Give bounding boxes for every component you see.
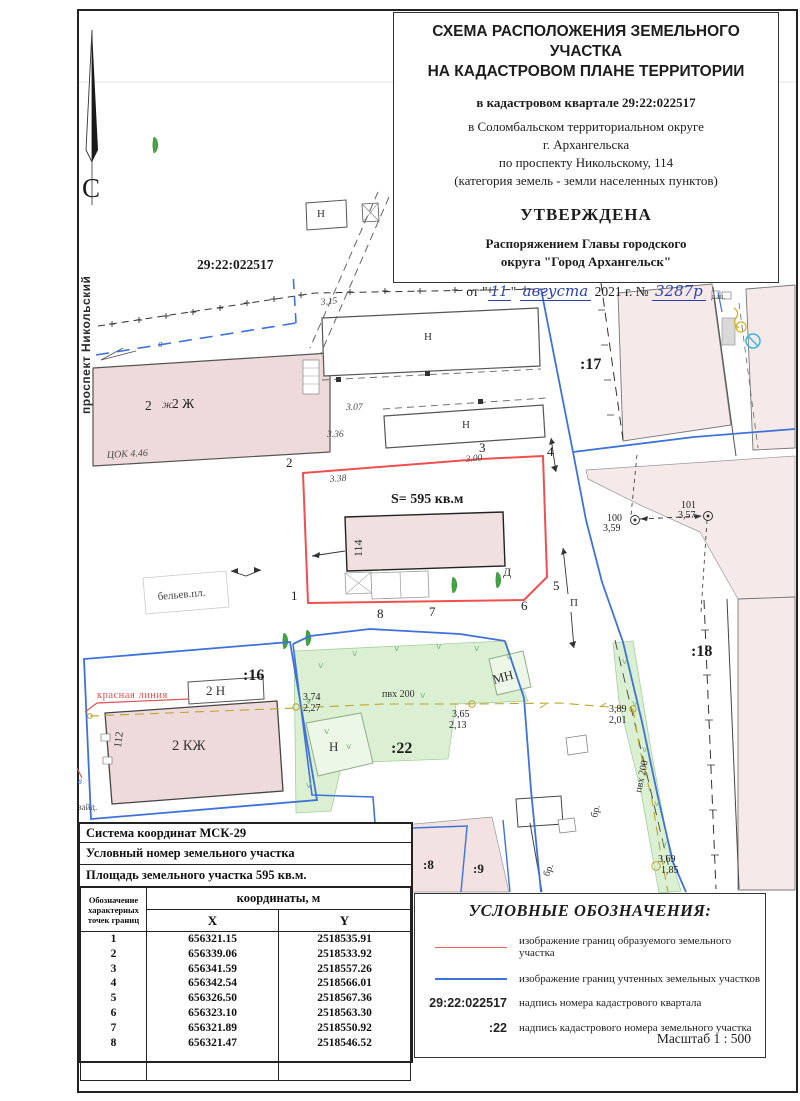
approval-line: округа "Город Архангельск" — [394, 253, 778, 271]
quarter-number-swatch: 29:22:022517 — [415, 996, 507, 1010]
title-block: СХЕМА РАСПОЛОЖЕНИЯ ЗЕМЕЛЬНОГО УЧАСТКА НА… — [393, 12, 779, 283]
point-number: 2 — [81, 947, 147, 962]
table-filler — [81, 1050, 411, 1080]
elevation-value: 3,65 — [452, 709, 470, 720]
points-table: Обозначение характерных точек границ коо… — [80, 887, 411, 1081]
doc-title-line2: НА КАДАСТРОВОМ ПЛАНЕ ТЕРРИТОРИИ — [394, 62, 778, 82]
x-value: 656321.89 — [147, 1021, 279, 1036]
date-prefix: от " — [466, 284, 487, 299]
handwritten-number: 3287р — [652, 282, 706, 301]
legend-item-label: надпись номера кадастрового квартала — [519, 997, 701, 1009]
x-value: 656342.54 — [147, 976, 279, 991]
x-value: 656341.59 — [147, 962, 279, 977]
hand-mark-cok: ЦОК 4.46 — [106, 448, 149, 461]
parcel-18-label: :18 — [691, 643, 712, 660]
x-value: 656321.15 — [147, 932, 279, 947]
building-2kzh-label: 2 КЖ — [172, 738, 206, 754]
grass-mark: v — [632, 699, 638, 709]
vertex-7: 7 — [429, 604, 436, 619]
point-number: 8 — [81, 1036, 147, 1051]
building-n-label: Н — [317, 208, 325, 220]
x-value: 656326.50 — [147, 991, 279, 1006]
parcel-8-label: :8 — [423, 857, 434, 872]
cadastral-quarter-number: 29:22:022517 — [197, 257, 274, 272]
grass-mark: v — [394, 644, 400, 654]
vertex-8: 8 — [377, 606, 384, 621]
y-value: 2518563.30 — [279, 1006, 411, 1021]
legend-item: изображение границ образуемого земельног… — [415, 935, 765, 959]
building-114-label: 114 — [351, 539, 365, 557]
coord-row: 8656321.472518546.52 — [81, 1036, 411, 1051]
x-value: 656339.06 — [147, 947, 279, 962]
coord-row: 5656326.502518567.36 — [81, 991, 411, 1006]
vertex-2: 2 — [286, 455, 293, 470]
legend-item-label: изображение границ образуемого земельног… — [519, 935, 765, 959]
cadastral-quarter-line: в кадастровом квартале 29:22:022517 — [394, 95, 778, 111]
building-n-label: Н — [424, 331, 432, 343]
hand-mark-elev: 3.38 — [328, 474, 347, 486]
point-d-label: Д — [503, 565, 511, 579]
legend-title: УСЛОВНЫЕ ОБОЗНАЧЕНИЯ: — [415, 901, 765, 921]
coord-row: 1656321.152518535.91 — [81, 932, 411, 947]
grass-mark: v — [346, 742, 352, 752]
coord-row: 7656321.892518550.92 — [81, 1021, 411, 1036]
grass-mark: v — [654, 799, 660, 809]
vertex-5: 5 — [553, 578, 560, 593]
coords-column-header: координаты, м — [147, 888, 411, 910]
elevation-value: 3,69 — [658, 854, 676, 865]
grass-mark: v — [352, 649, 358, 659]
y-value: 2518546.52 — [279, 1036, 411, 1051]
building-112-label: 112 — [112, 731, 126, 748]
parcel-16-label: :16 — [243, 667, 264, 684]
y-value: 2518535.91 — [279, 932, 411, 947]
coord-row: 3656341.592518557.26 — [81, 962, 411, 977]
parcel-9-label: :9 — [473, 861, 484, 876]
street-name: проспект Никольский — [79, 276, 93, 414]
vertex-1: 1 — [291, 588, 298, 603]
grass-mark: v — [474, 644, 480, 654]
legend-item-label: изображение границ учтенных земельных уч… — [519, 973, 760, 985]
date-mid: " — [511, 284, 517, 299]
area-row: Площадь земельного участка 595 кв.м. — [80, 865, 411, 887]
point-number: 7 — [81, 1021, 147, 1036]
cadastral-scheme-page: Спроспект Никольский29:22:0225172ж2 ЖЦОК… — [0, 0, 800, 1101]
north-letter: С — [82, 173, 100, 203]
hand-mark-elev: 3.00 — [464, 453, 483, 465]
vertex-3: 3 — [479, 440, 486, 455]
coordinate-table: Система координат МСК-29 Условный номер … — [78, 822, 413, 1063]
grass-mark: v — [622, 657, 628, 667]
y-value: 2518557.26 — [279, 962, 411, 977]
water-line-label: в — [158, 339, 163, 350]
point-number: 6 — [81, 1006, 147, 1021]
pole-symbol-label: П — [570, 597, 578, 609]
elevation-value: 2,13 — [449, 720, 467, 731]
elevation-value: 1,85 — [661, 865, 679, 876]
parcel-area-label: S= 595 кв.м — [391, 492, 464, 507]
elevation-value: 3,89 — [609, 704, 627, 715]
x-value: 656323.10 — [147, 1006, 279, 1021]
parcel-17-label: :17 — [580, 356, 601, 373]
y-value: 2518567.36 — [279, 991, 411, 1006]
grass-mark: v — [306, 781, 312, 791]
point-number: 1 — [81, 932, 147, 947]
handwritten-month: августа — [520, 282, 592, 301]
coord-system-row: Система координат МСК-29 — [80, 824, 411, 843]
benchmark-value: 3,59 — [603, 523, 621, 534]
building-2zh-number: 2 — [145, 398, 152, 413]
grass-mark: v — [642, 745, 648, 755]
location-line: в Соломбальском территориальном округе — [394, 118, 778, 136]
legend-item: 29:22:022517 надпись номера кадастрового… — [415, 996, 765, 1010]
points-column-header: Обозначение характерных точек границ — [81, 888, 147, 932]
point-number: 3 — [81, 962, 147, 977]
approval-date-line: от "11" августа 2021 г. № 3287р — [394, 282, 778, 300]
edge-note: зайд. — [78, 802, 97, 812]
red-line-label: красная линия — [97, 690, 168, 701]
benchmark-value: 3,57 — [678, 510, 696, 521]
coord-row: 2656339.062518533.92 — [81, 947, 411, 962]
location-line: г. Архангельска — [394, 136, 778, 154]
grass-mark: v — [662, 839, 668, 849]
doc-title-line1: СХЕМА РАСПОЛОЖЕНИЯ ЗЕМЕЛЬНОГО УЧАСТКА — [394, 22, 778, 62]
y-value: 2518533.92 — [279, 947, 411, 962]
red-line-swatch — [415, 947, 507, 948]
point-number: 5 — [81, 991, 147, 1006]
approval-line: Распоряжением Главы городского — [394, 235, 778, 253]
handwritten-day: 11 — [488, 284, 511, 301]
conditional-number-row: Условный номер земельного участка — [80, 843, 411, 865]
y-column-header: Y — [279, 910, 411, 932]
hand-mark-elev: 3.36 — [326, 430, 344, 440]
coord-row: 4656342.542518566.01 — [81, 976, 411, 991]
grass-mark: v — [420, 691, 426, 701]
grass-mark: v — [506, 652, 512, 662]
building-2zh-label: 2 Ж — [172, 396, 195, 411]
hand-mark-elev: 3.07 — [345, 403, 364, 413]
utility-pvc-label: пвх 200 — [382, 689, 415, 700]
legend: УСЛОВНЫЕ ОБОЗНАЧЕНИЯ: изображение границ… — [414, 893, 766, 1058]
scale-label: Масштаб 1 : 500 — [657, 1031, 751, 1047]
location-line: по проспекту Никольскому, 114 — [394, 154, 778, 172]
parcel-number-swatch: :22 — [415, 1021, 507, 1035]
vertex-6: 6 — [521, 598, 528, 613]
parcel-22-label: :22 — [391, 740, 412, 757]
location-line: (категория земель - земли населенных пун… — [394, 172, 778, 190]
water-line-label: в — [78, 776, 82, 786]
building-n-label: Н — [462, 419, 470, 431]
grass-mark: v — [436, 642, 442, 652]
grass-mark: v — [324, 727, 330, 737]
x-column-header: X — [147, 910, 279, 932]
date-year: 2021 г. № — [595, 284, 649, 299]
legend-item: изображение границ учтенных земельных уч… — [415, 973, 765, 985]
coord-row: 6656323.102518563.30 — [81, 1006, 411, 1021]
building-2n-label: 2 Н — [206, 683, 225, 698]
grass-mark: v — [306, 697, 312, 707]
vertex-4: 4 — [547, 444, 554, 459]
y-value: 2518566.01 — [279, 976, 411, 991]
blue-line-swatch — [415, 978, 507, 980]
coords-body: 1656321.152518535.912656339.062518533.92… — [81, 932, 411, 1051]
y-value: 2518550.92 — [279, 1021, 411, 1036]
hand-mark-elev: 3,15 — [319, 296, 338, 308]
x-value: 656321.47 — [147, 1036, 279, 1051]
approved-heading: УТВЕРЖДЕНА — [394, 205, 778, 225]
elevation-value: 2,01 — [609, 715, 627, 726]
building-n-label: Н — [329, 739, 338, 754]
grass-mark: v — [318, 661, 324, 671]
point-number: 4 — [81, 976, 147, 991]
